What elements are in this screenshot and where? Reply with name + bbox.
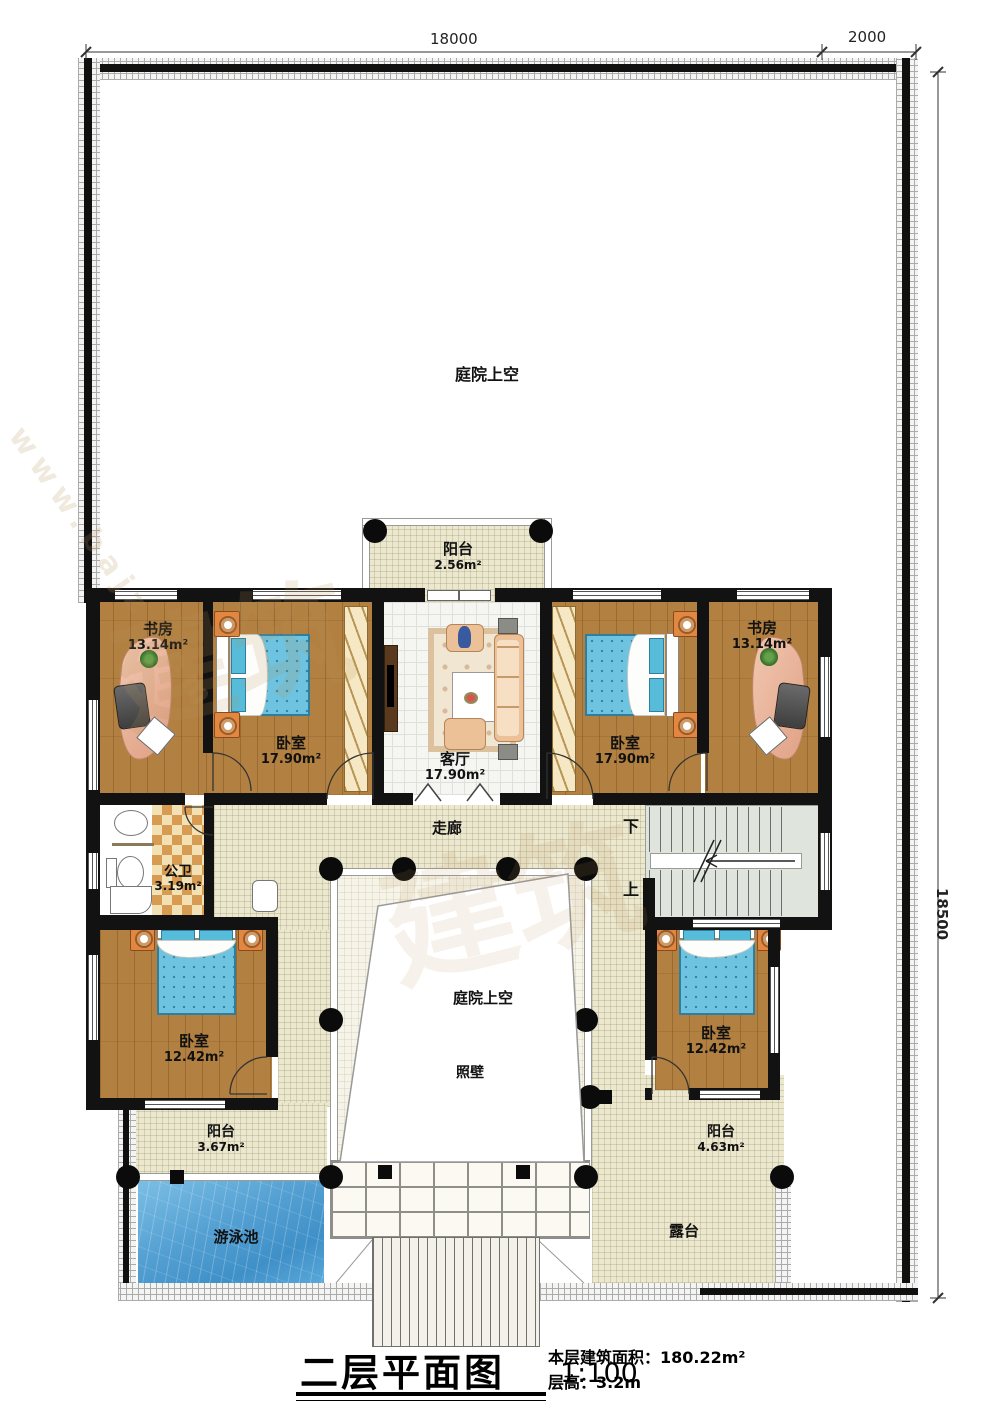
stairs-down-label: 下: [623, 818, 639, 836]
shower-tray: [110, 886, 152, 914]
inner-courtyard-floor: [330, 868, 592, 1180]
column: [529, 519, 553, 543]
nightstand-tr-2: [673, 712, 699, 738]
title-underline-thick: [296, 1392, 546, 1396]
window-bedroomBL-left: [88, 955, 98, 1040]
window-bedroomBL-bottom: [145, 1100, 225, 1109]
wall-bottom-e: [593, 793, 830, 805]
bathroom-area: 3.19m²: [154, 880, 201, 894]
balcony-bl-label: 阳台: [207, 1124, 235, 1140]
screen-wall-label: 照壁: [456, 1065, 484, 1081]
bedroomBR-wall-left: [645, 917, 657, 1060]
terrace-railing-right: [775, 1178, 791, 1283]
outer-wall-right: [896, 58, 918, 1302]
pergola-lattice: [330, 1160, 590, 1239]
partition-bedroomL-living: [372, 588, 384, 805]
column: [319, 1008, 343, 1032]
bedroomBR-wall-bottom-a: [645, 1088, 652, 1100]
side-table-1: [498, 618, 518, 634]
stairs-up-label: 上: [623, 881, 639, 899]
stairs-center-rail: [650, 853, 802, 869]
bedroomBL-wall-top: [100, 917, 278, 930]
wardrobe-bedroom-right: [552, 606, 576, 792]
bedroom-tr-label: 卧室: [610, 735, 640, 752]
dim-top-main: 18000: [430, 30, 478, 48]
bed-top-right-headboard: [666, 633, 679, 717]
partition-bedroomR-studyR: [697, 588, 709, 753]
column-square: [516, 1165, 530, 1179]
dim-right-side: 18500: [933, 888, 951, 940]
wardrobe-bedroom-left: [344, 606, 368, 792]
desk-chair-right: [773, 682, 811, 730]
nightstand-tl-2: [214, 712, 240, 738]
exterior-steps: [372, 1237, 540, 1347]
window-studyR-right: [820, 657, 830, 737]
corridor-label: 走廊: [432, 820, 462, 837]
bedroom-tl-label: 卧室: [276, 735, 306, 752]
dim-top-right: 2000: [848, 28, 886, 46]
bed-top-left-headboard: [216, 633, 229, 717]
living-label: 客厅: [440, 751, 470, 768]
window-studyL-left: [88, 700, 98, 790]
window-stairwell-bottom: [693, 919, 780, 928]
pool-label: 游泳池: [213, 1229, 258, 1246]
bathroom-wall-right: [204, 793, 214, 927]
bathroom-label: 公卫: [164, 864, 192, 880]
bedroom-tl-area: 17.90m²: [261, 753, 321, 768]
column-square: [598, 1090, 612, 1104]
outer-wall-left: [78, 58, 100, 603]
window-stairs-right: [820, 833, 830, 890]
bathroom-sink: [114, 810, 148, 836]
pool-edge: [136, 1173, 326, 1181]
bed-top-left-pillow-1: [231, 638, 246, 674]
washer: [252, 880, 278, 912]
column: [319, 1165, 343, 1189]
bed-top-left-pillow-2: [231, 678, 246, 712]
bedroom-tr-area: 17.90m²: [595, 753, 655, 768]
partition-living-bedroomR: [540, 588, 552, 805]
column: [496, 857, 520, 881]
outer-wall-top: [78, 58, 918, 80]
balcony-br-label: 阳台: [707, 1124, 735, 1140]
column: [363, 519, 387, 543]
sofa-cushions: [497, 640, 519, 736]
wall-bottom-d: [500, 793, 547, 805]
tv-screen: [387, 665, 394, 707]
column-square: [378, 1165, 392, 1179]
study-left-label: 书房: [143, 621, 173, 638]
courtyard-top-label: 庭院上空: [455, 366, 519, 384]
title-area-line: 本层建筑面积：180.22m²: [548, 1344, 745, 1368]
toilet-bowl: [117, 856, 144, 889]
courtyard-center-label: 庭院上空: [453, 990, 513, 1007]
balcony-top-label: 阳台: [443, 541, 473, 558]
plan-title: 二层平面图: [300, 1342, 505, 1397]
study-left-area: 13.14m²: [128, 639, 188, 654]
side-table-2: [498, 744, 518, 760]
wall-bottom-c: [373, 793, 413, 805]
balcony-top-railing-top: [362, 518, 552, 526]
toilet-tank: [106, 858, 117, 888]
balcony-top-area: 2.56m²: [434, 559, 481, 573]
bedroom-bl-label: 卧室: [179, 1033, 209, 1050]
floor-plan: 18000 2000 18500 庭院上空 阳台 2.56m² 书房 13.14…: [0, 0, 1000, 1414]
terrace-label: 露台: [669, 1223, 699, 1240]
column: [392, 857, 416, 881]
column-square: [170, 1170, 184, 1184]
bathroom-counter: [112, 843, 154, 846]
column: [574, 1008, 598, 1032]
window-bedroomL-top: [253, 590, 341, 600]
nightstand-tr-1: [673, 611, 699, 637]
bedroom-br-area: 12.42m²: [686, 1043, 746, 1058]
wall-bottom-b: [212, 793, 327, 805]
stairs-upper-flight: [649, 807, 785, 852]
bed-top-right-pillow-2: [649, 678, 664, 712]
armchair-bottom: [444, 718, 486, 750]
window-studyL-top: [115, 590, 177, 600]
screen-wall: [400, 1086, 512, 1110]
partition-studyL-bedroomL: [203, 588, 213, 753]
title-height-line: 层高：3.2m: [548, 1369, 641, 1393]
balcony-door-panel-left: [427, 590, 459, 601]
person-figure: [458, 626, 471, 648]
wall-bottom-a: [86, 793, 185, 805]
window-bathroom-left: [88, 853, 98, 889]
balcony-bl-area: 3.67m²: [197, 1141, 244, 1155]
stairs-lower-flight: [649, 870, 785, 916]
column: [770, 1165, 794, 1189]
desk-chair-left: [113, 682, 151, 730]
balcony-br-area: 4.63m²: [697, 1141, 744, 1155]
study-right-area: 13.14m²: [732, 638, 792, 653]
window-bedroomR-top: [573, 590, 661, 600]
column: [574, 857, 598, 881]
living-area: 17.90m²: [425, 769, 485, 784]
balcony-door-panel-right: [459, 590, 491, 601]
bedroom-br-label: 卧室: [701, 1025, 731, 1042]
window-studyR-top: [737, 590, 809, 600]
bedroomBL-wall-right: [266, 917, 278, 1057]
table-flowers: [464, 692, 478, 704]
window-bedroomBR-bottom: [700, 1090, 760, 1099]
column: [319, 857, 343, 881]
column: [574, 1165, 598, 1189]
nightstand-tl-1: [214, 611, 240, 637]
courtyard-railing-top: [330, 868, 592, 876]
study-right-label: 书房: [747, 620, 777, 637]
window-bedroomBR-right: [770, 967, 779, 1053]
column: [116, 1165, 140, 1189]
bed-top-right-pillow-1: [649, 638, 664, 674]
balcony-bottom-right-floor: [592, 1075, 784, 1283]
title-underline-thin: [296, 1400, 546, 1401]
bedroom-bl-area: 12.42m²: [164, 1051, 224, 1066]
outer-wall-left-lower: [118, 1098, 136, 1301]
